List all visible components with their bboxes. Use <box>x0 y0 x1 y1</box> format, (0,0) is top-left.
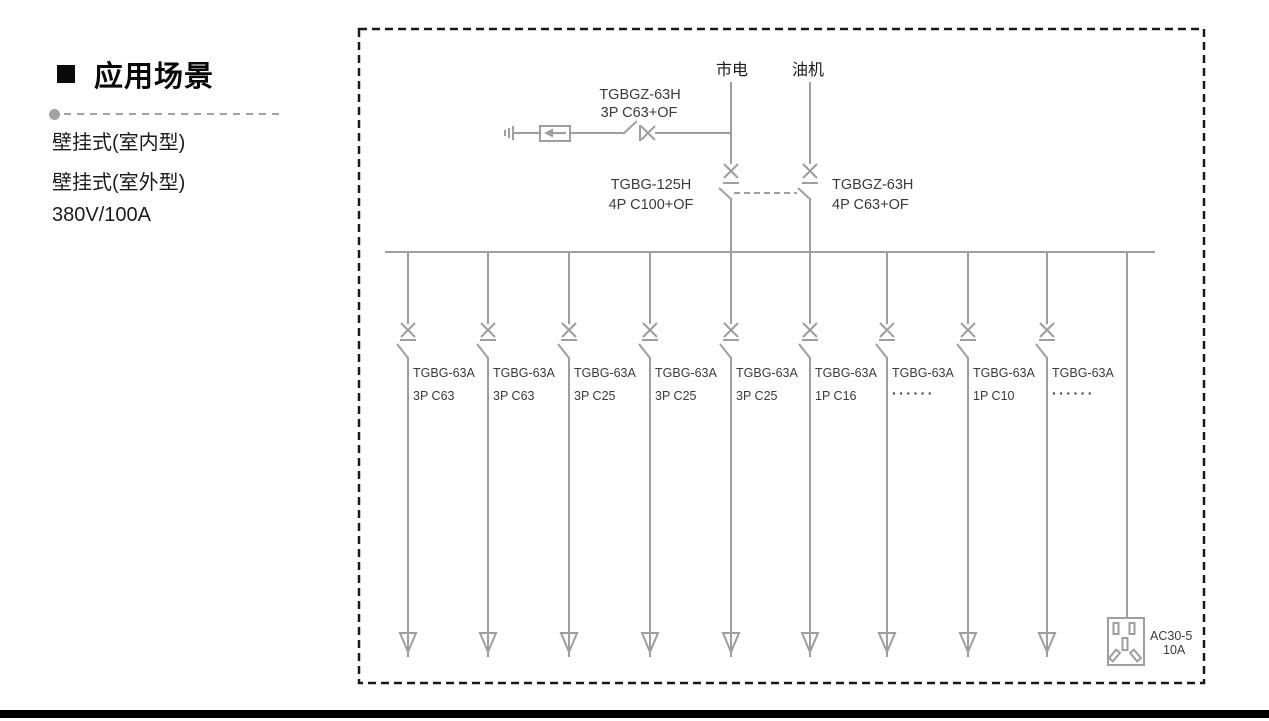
branch-rating-label: ······ <box>892 385 935 401</box>
breaker-feeder-icon <box>799 252 818 657</box>
mains-source-label: 市电 <box>716 61 748 79</box>
mains-breaker-rating-label: 4P C100+OF <box>609 197 694 213</box>
socket-branch: AC30-5 10A <box>1108 252 1192 665</box>
branch-rating-label: 3P C25 <box>736 389 778 403</box>
branch-rating-label: 1P C10 <box>973 389 1015 403</box>
surge-arrester-icon <box>540 126 570 141</box>
socket-icon <box>1108 618 1144 665</box>
branch-rating-label: ······ <box>1052 385 1095 401</box>
branch-model-label: TGBG-63A <box>493 366 555 380</box>
generator-source-label: 油机 <box>792 61 824 79</box>
breaker-feeder-icon <box>397 252 416 657</box>
branch-model-label: TGBG-63A <box>815 366 877 380</box>
feeder-branch-8: TGBG-63A 1P C10 <box>957 252 1035 657</box>
breaker-icon <box>798 82 818 252</box>
mains-breaker-model-label: TGBG-125H <box>611 177 692 193</box>
socket-model-label: AC30-5 <box>1150 629 1192 643</box>
generator-feed-breaker <box>798 82 818 252</box>
branch-rating-label: 3P C25 <box>655 389 697 403</box>
spd-branch <box>505 121 731 141</box>
spd-breaker-rating-label: 3P C63+OF <box>601 105 678 121</box>
branch-rating-label: 3P C63 <box>493 389 535 403</box>
breaker-feeder-icon <box>957 252 976 657</box>
breaker-feeder-icon <box>1036 252 1055 657</box>
feeder-branch-1: TGBG-63A 3P C63 <box>397 252 475 657</box>
branch-rating-label: 3P C25 <box>574 389 616 403</box>
single-line-diagram: 市电 油机 TGBGZ-63H 3P C63+OF T <box>0 0 1269 721</box>
socket-rating-label: 10A <box>1163 643 1186 657</box>
feeder-branch-4: TGBG-63A 3P C25 <box>639 252 717 657</box>
feeder-branch-3: TGBG-63A 3P C25 <box>558 252 636 657</box>
branch-model-label: TGBG-63A <box>655 366 717 380</box>
feeder-branch-2: TGBG-63A 3P C63 <box>477 252 555 657</box>
breaker-icon <box>623 121 655 141</box>
branch-rating-label: 3P C63 <box>413 389 455 403</box>
generator-breaker-rating-label: 4P C63+OF <box>832 197 909 213</box>
branch-model-label: TGBG-63A <box>973 366 1035 380</box>
breaker-icon <box>719 82 739 252</box>
breaker-feeder-icon <box>876 252 895 657</box>
breaker-feeder-icon <box>639 252 658 657</box>
branch-model-label: TGBG-63A <box>736 366 798 380</box>
breaker-feeder-icon <box>720 252 739 657</box>
branch-model-label: TGBG-63A <box>892 366 954 380</box>
feeder-branch-5: TGBG-63A 3P C25 <box>720 252 798 657</box>
feeder-branch-6: TGBG-63A 1P C16 <box>799 252 877 657</box>
branch-model-label: TGBG-63A <box>413 366 475 380</box>
footer-divider-bar <box>0 710 1269 718</box>
mains-feed-breaker <box>719 82 739 252</box>
branch-model-label: TGBG-63A <box>574 366 636 380</box>
generator-breaker-model-label: TGBGZ-63H <box>832 177 913 193</box>
branch-rating-label: 1P C16 <box>815 389 857 403</box>
feeder-branch-9: TGBG-63A ······ <box>1036 252 1114 657</box>
branch-model-label: TGBG-63A <box>1052 366 1114 380</box>
ground-icon <box>505 126 513 140</box>
spd-breaker-model-label: TGBGZ-63H <box>599 87 680 103</box>
feeder-branch-7: TGBG-63A ······ <box>876 252 954 657</box>
breaker-feeder-icon <box>477 252 496 657</box>
breaker-feeder-icon <box>558 252 577 657</box>
